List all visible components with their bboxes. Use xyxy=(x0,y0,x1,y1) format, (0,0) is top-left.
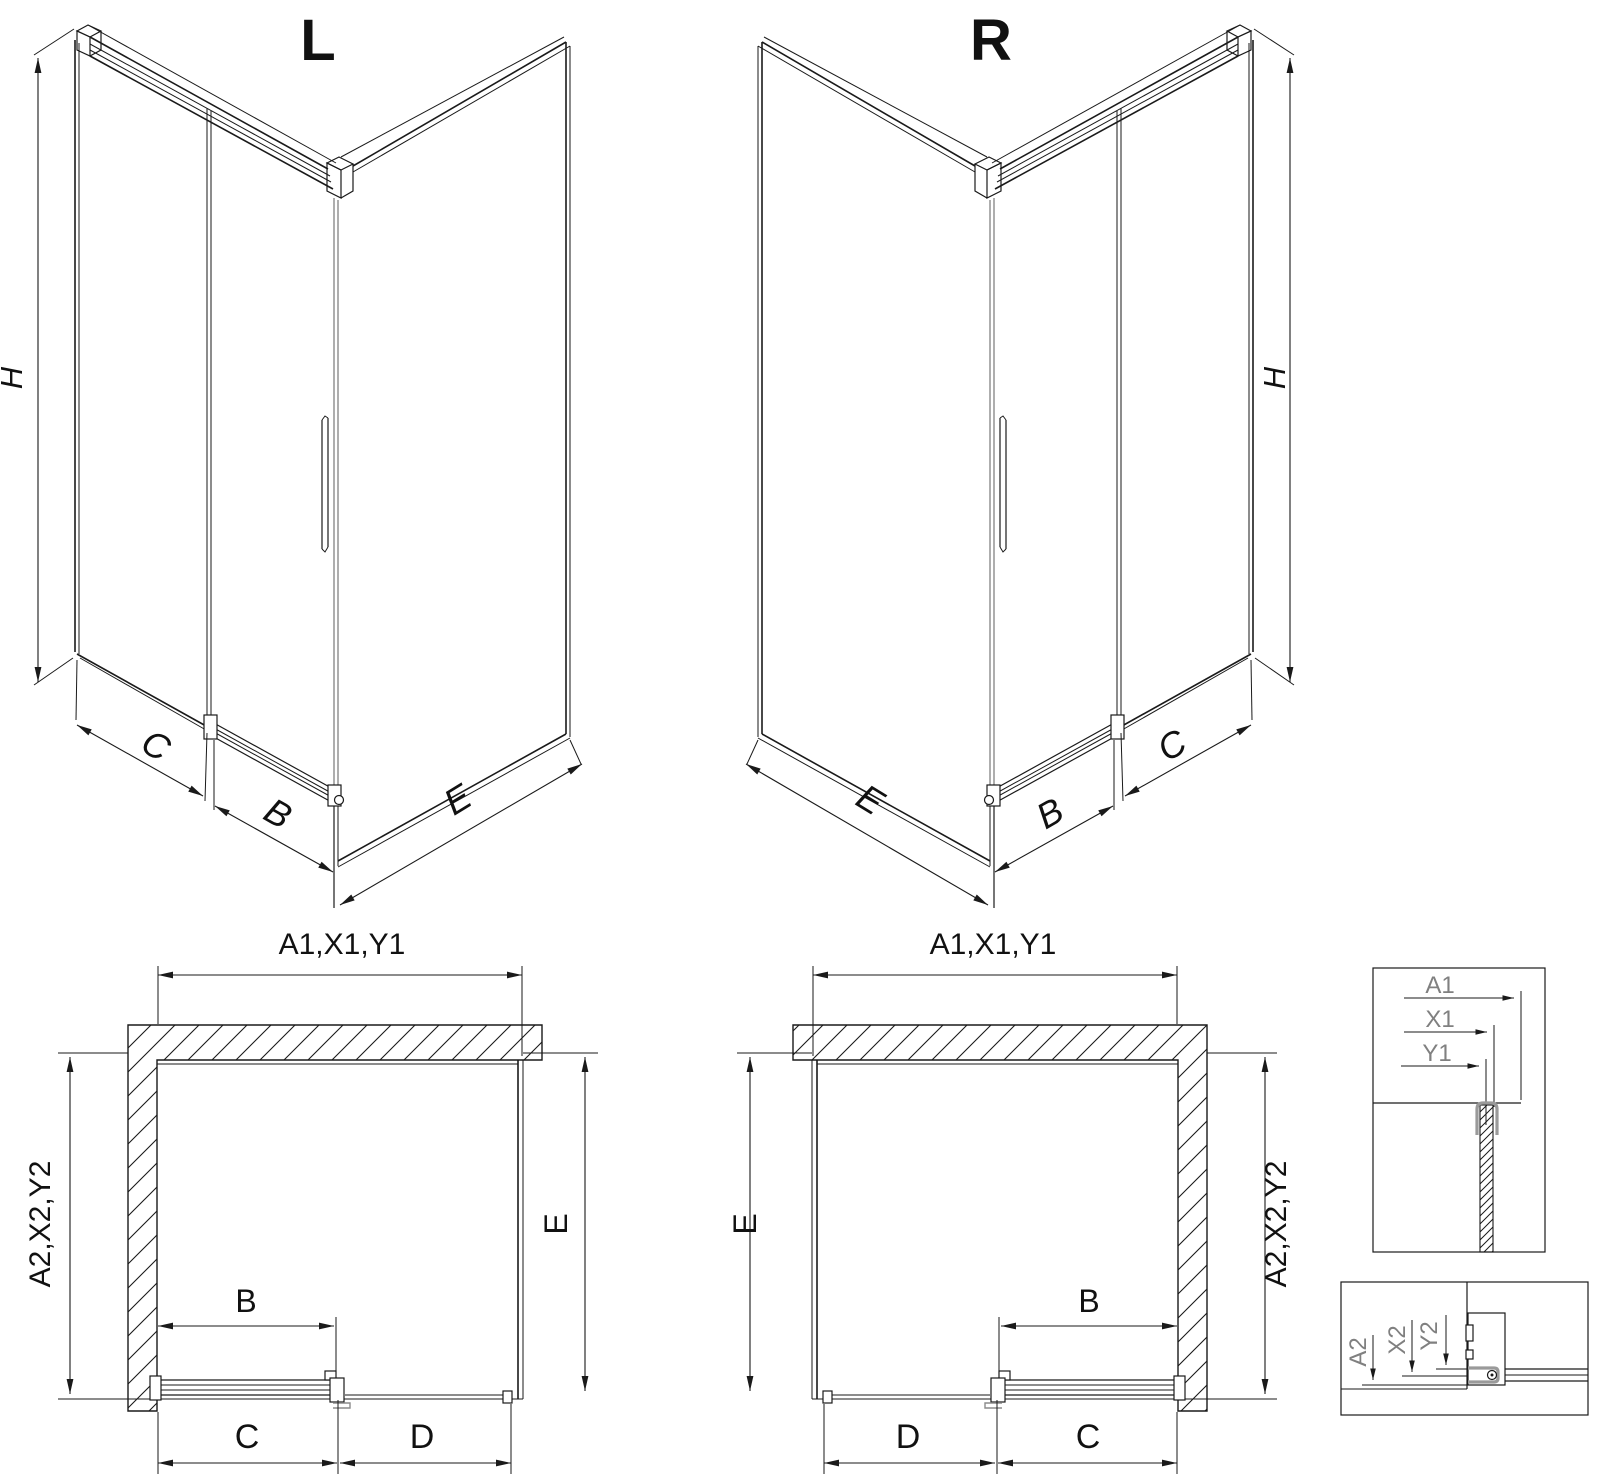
iso-left-geometry xyxy=(34,25,582,908)
iso-right-dim-e: E xyxy=(850,776,893,824)
shower-enclosure-dimension-drawing: L H C B E R H C B E A1,X1,Y1 A2,X2,Y2 E … xyxy=(0,0,1600,1474)
iso-left-dim-c: C xyxy=(135,721,179,770)
plan-left-dim-a2x2y2: A2,X2,Y2 xyxy=(24,1161,57,1288)
detail-bottom-callout: A2 X2 Y2 xyxy=(1341,1282,1588,1415)
plan-right-dim-b: B xyxy=(1078,1283,1099,1319)
plan-right-wall-hatch xyxy=(793,1025,1207,1411)
plan-left-wall-hatch xyxy=(128,1025,542,1411)
detail-top-callout: A1 X1 Y1 xyxy=(1373,968,1545,1252)
detail-bottom-label-x2: X2 xyxy=(1384,1325,1411,1354)
plan-right-dim-e: E xyxy=(727,1213,763,1234)
iso-view-left: L H C B E xyxy=(0,8,582,908)
plan-left-dim-a1x1y1: A1,X1,Y1 xyxy=(279,928,406,961)
iso-left-title: L xyxy=(300,8,335,73)
iso-left-dim-h: H xyxy=(0,366,29,389)
iso-right-title: R xyxy=(970,8,1012,73)
plan-left-dim-c: C xyxy=(235,1418,260,1456)
iso-right-dim-c: C xyxy=(1150,720,1194,769)
plan-left-dim-d: D xyxy=(410,1418,435,1456)
detail-top-label-x1: X1 xyxy=(1425,1006,1454,1033)
detail-top-label-y1: Y1 xyxy=(1422,1040,1451,1067)
plan-right-dim-d: D xyxy=(896,1418,921,1456)
plan-right-dim-c: C xyxy=(1076,1418,1101,1456)
detail-top-glass-section xyxy=(1480,1105,1493,1252)
iso-right-geometry xyxy=(746,25,1294,908)
iso-right-dim-b: B xyxy=(1029,789,1070,837)
detail-bottom-label-a2: A2 xyxy=(1345,1337,1372,1366)
plan-right-dim-a1x1y1: A1,X1,Y1 xyxy=(930,928,1057,961)
plan-view-right: A1,X1,Y1 E A2,X2,Y2 B D C xyxy=(727,928,1293,1474)
iso-left-dim-e: E xyxy=(437,775,480,823)
iso-left-dim-b: B xyxy=(258,789,299,837)
iso-view-right: R H C B E xyxy=(746,8,1294,908)
plan-right-dim-a2x2y2: A2,X2,Y2 xyxy=(1260,1161,1293,1288)
detail-top-label-a1: A1 xyxy=(1425,972,1454,999)
iso-right-dim-h: H xyxy=(1257,366,1292,389)
detail-bottom-label-y2: Y2 xyxy=(1416,1321,1443,1350)
plan-left-dim-e: E xyxy=(538,1213,574,1234)
detail-bottom-frame xyxy=(1341,1282,1588,1415)
detail-top-frame xyxy=(1373,968,1545,1252)
plan-left-dim-b: B xyxy=(235,1283,256,1319)
plan-view-left: A1,X1,Y1 A2,X2,Y2 E B C D xyxy=(24,928,598,1474)
